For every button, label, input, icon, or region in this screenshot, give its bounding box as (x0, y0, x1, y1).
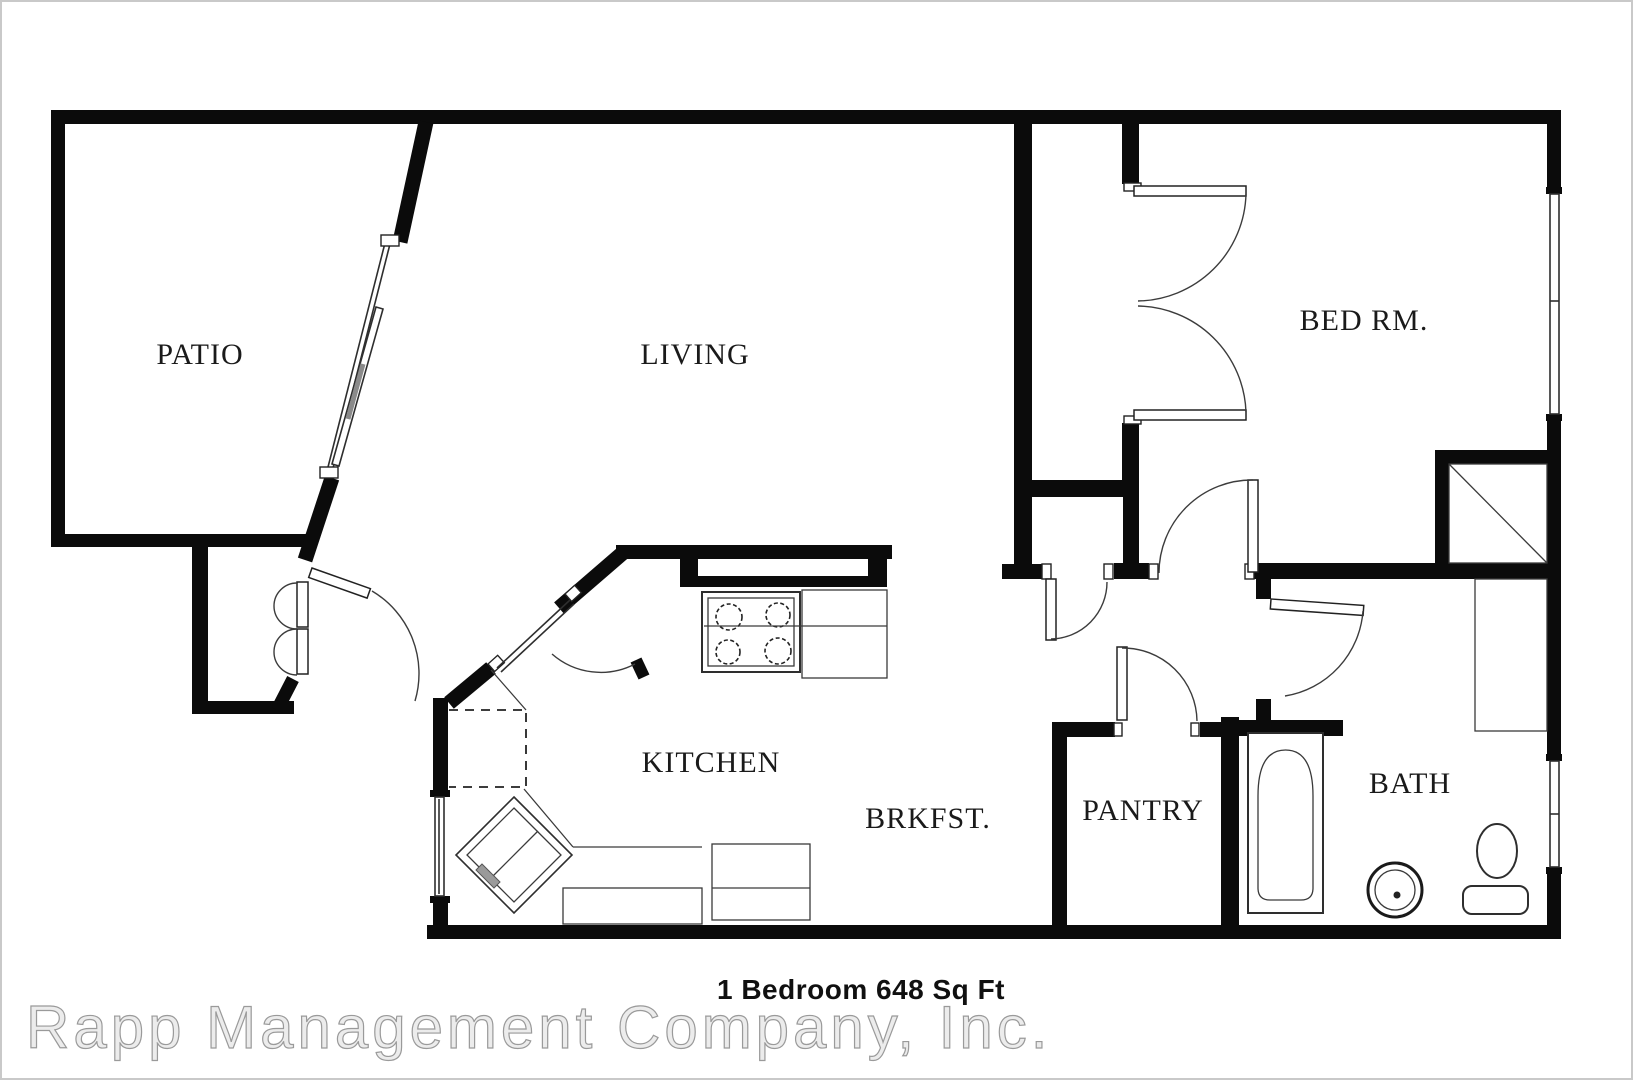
bath-window-cap-bottom (1546, 867, 1562, 874)
label-breakfast: BRKFST. (865, 802, 991, 835)
closet-door-leaf-top (1134, 186, 1246, 196)
bedroom-door-arc (1159, 480, 1253, 573)
wall-slant-lower (305, 478, 332, 560)
wall-entry-west (192, 534, 208, 714)
wall-patio-bottom (51, 534, 307, 547)
bath-door-leaf (1270, 599, 1363, 615)
wall-pantry-north-right (1200, 722, 1239, 737)
pantry-door-arc (1122, 648, 1197, 721)
corner-closet-diagonal (1449, 464, 1547, 563)
patio-sliding-door (320, 235, 399, 478)
dishwasher (712, 844, 810, 920)
label-pantry: PANTRY (1082, 794, 1204, 827)
bedroom-corner-closet (1449, 464, 1547, 563)
wall-right-middle (1547, 416, 1561, 758)
bedroom-door-leaf (1248, 480, 1258, 572)
slider-panel-core (348, 364, 363, 419)
wall-slant-upper (400, 122, 426, 242)
sink-drain-icon (1394, 892, 1401, 899)
wall-bath-door-jamb-bottom (1256, 699, 1271, 720)
front-door-arc (372, 591, 419, 701)
wall-right-upper (1547, 110, 1561, 192)
wall-closet-bottom (1014, 480, 1125, 497)
wall-living-east-foot (1002, 564, 1042, 579)
entry-closet-leaf-1 (297, 582, 308, 627)
hall-door-arc (1051, 582, 1107, 639)
wall-pantry-west (1052, 722, 1067, 939)
pantry-door-leaf (1117, 647, 1127, 720)
pantry-door-jamb-left (1114, 723, 1122, 736)
bath-door-arc (1285, 611, 1363, 696)
toilet-bowl (1477, 824, 1517, 878)
stove-cooktop (702, 592, 800, 672)
bedroom-door-jamb-left (1149, 564, 1158, 579)
entry-closet-arc-1 (274, 583, 297, 629)
wall-pantry-east (1221, 717, 1239, 939)
floor-plan-page: PATIO LIVING BED RM. KITCHEN BRKFST. PAN… (0, 0, 1633, 1080)
wall-kitchen-west-stub (433, 900, 448, 925)
label-bath: BATH (1369, 767, 1451, 800)
wall-corner-closet-top (1435, 450, 1561, 464)
walls (51, 110, 1561, 939)
wall-top (51, 110, 1561, 124)
slider-cap-top (381, 235, 399, 246)
wall-bath-door-jamb-top (1256, 571, 1271, 599)
closet-door-arc-top (1138, 194, 1246, 301)
label-patio: PATIO (156, 338, 243, 371)
company-watermark: Rapp Management Company, Inc. (26, 994, 1051, 1061)
closet-door-arc-bottom (1138, 306, 1246, 412)
bedroom-window-cap-bottom (1546, 414, 1562, 421)
dashed-appliance-space (449, 710, 526, 787)
bathtub-surround (1248, 733, 1323, 913)
label-living: LIVING (640, 338, 749, 371)
wall-bedroom-south (1254, 563, 1561, 579)
entry-closet-leaf-2 (297, 629, 308, 674)
bath-window-cap-top (1546, 754, 1562, 761)
wall-left-patio (51, 110, 65, 547)
toilet-tank (1463, 886, 1528, 914)
bedroom-window (1550, 194, 1559, 414)
entry-closet-arc-2 (274, 629, 297, 675)
wall-corner-closet-left (1435, 450, 1449, 579)
bath-sink (1368, 863, 1422, 917)
doors (274, 183, 1364, 736)
wall-kitchen-west (433, 698, 448, 794)
hall-door-jamb-left (1042, 564, 1051, 579)
wall-bedroom-west-upper (1122, 124, 1139, 184)
hall-door-leaf (1046, 579, 1056, 640)
kitchen-window-cap-top (430, 790, 450, 797)
label-bedroom: BED RM. (1300, 304, 1429, 337)
closet-door-leaf-bottom (1134, 410, 1246, 420)
wall-hall-divider (1123, 497, 1139, 563)
wall-pantry-north-left (1052, 722, 1115, 737)
linen-closet (1475, 579, 1547, 731)
front-door-leaf (309, 568, 371, 598)
kitchen-counter-slot (698, 559, 868, 576)
kitchen-door-arc (552, 654, 635, 672)
wall-kitchen-door-stub (636, 660, 644, 677)
pantry-door-jamb-right (1191, 723, 1199, 736)
wall-living-east (1014, 124, 1032, 564)
bath-fixtures (1248, 579, 1547, 917)
wall-hall-divider-foot (1114, 563, 1149, 579)
kitchen-counter-right (802, 590, 887, 678)
wall-bottom (427, 925, 1561, 939)
slider-cap-bottom (320, 467, 338, 478)
label-kitchen: KITCHEN (642, 746, 781, 779)
wall-kitchen-slant-lower (449, 668, 491, 703)
kitchen-base-cabinet (563, 888, 702, 924)
bedroom-window-cap-top (1546, 187, 1562, 194)
hall-door-jamb-right (1104, 564, 1113, 579)
wall-kitchen-slant-upper (559, 551, 625, 608)
floor-plan-drawing: PATIO LIVING BED RM. KITCHEN BRKFST. PAN… (2, 2, 1633, 1080)
kitchen-window-cap-bottom (430, 896, 450, 903)
